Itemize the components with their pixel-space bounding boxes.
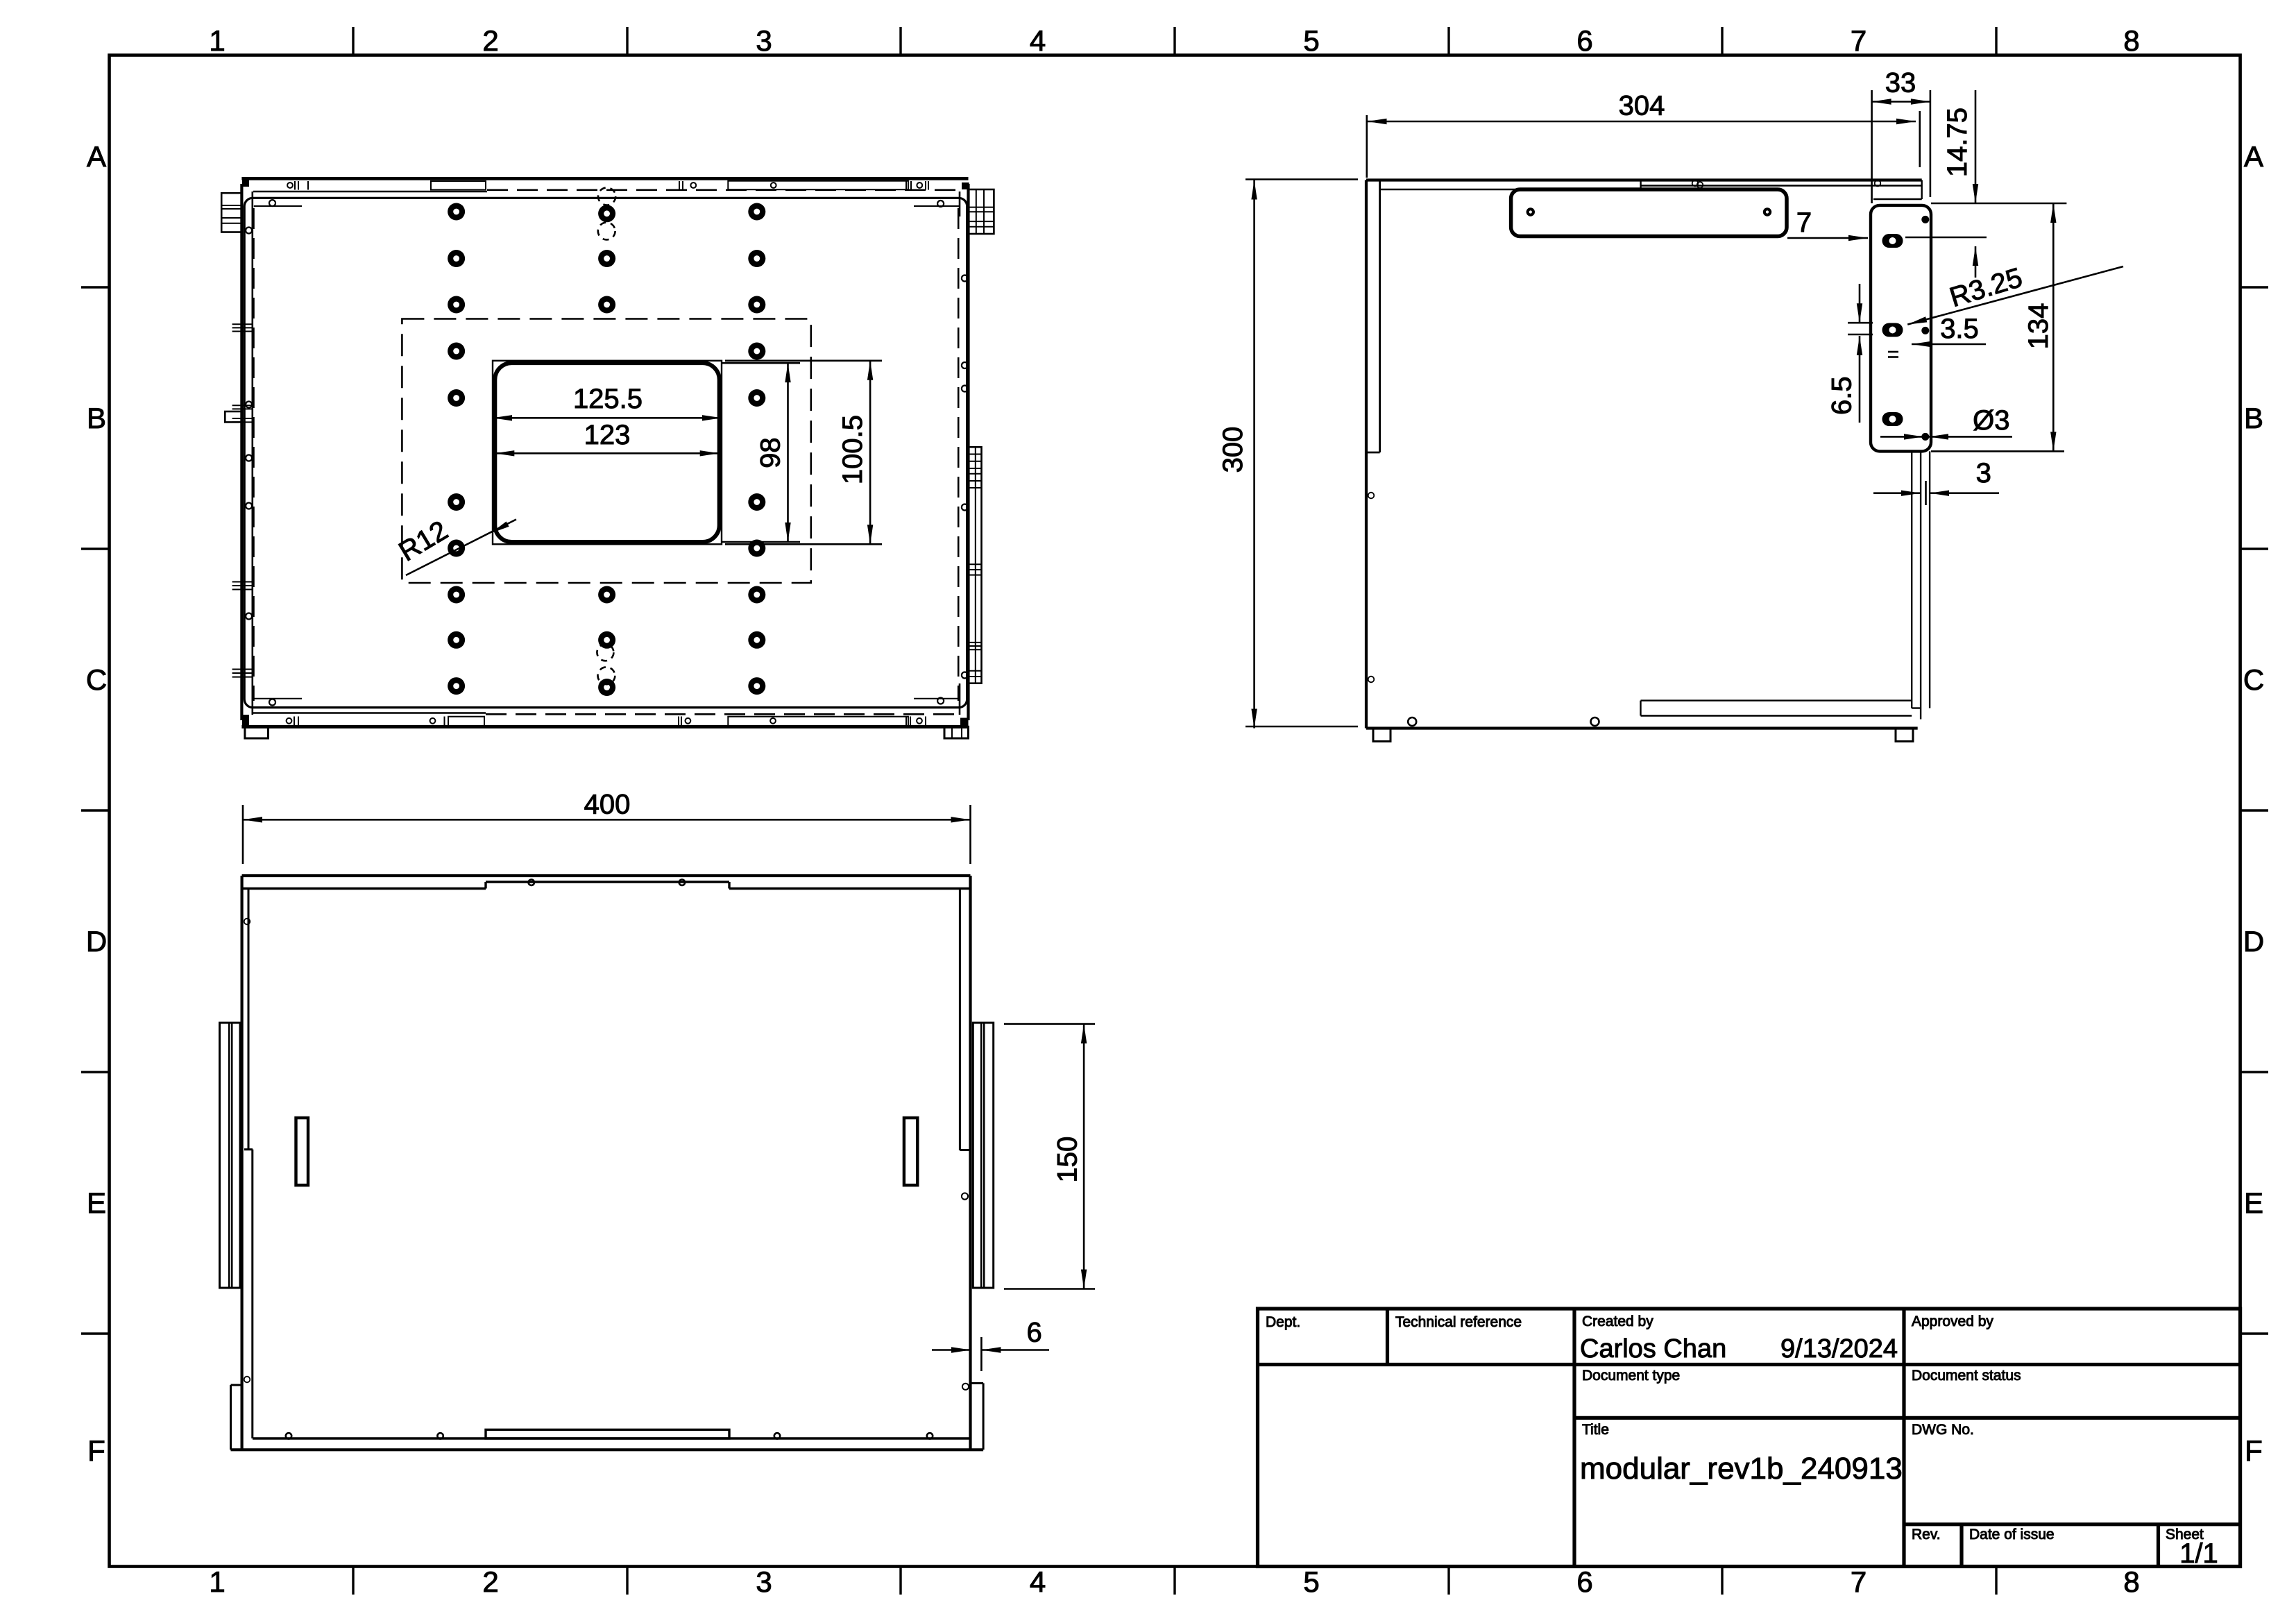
svg-text:Technical reference: Technical reference — [1395, 1314, 1522, 1330]
svg-text:Ø3: Ø3 — [1973, 405, 2009, 436]
svg-text:150: 150 — [1052, 1137, 1082, 1183]
svg-text:F: F — [87, 1434, 105, 1467]
svg-text:6: 6 — [1576, 1565, 1592, 1598]
svg-text:Document type: Document type — [1582, 1368, 1680, 1384]
svg-text:4: 4 — [1030, 24, 1046, 57]
svg-text:B: B — [2244, 402, 2263, 434]
svg-text:Dept.: Dept. — [1266, 1314, 1300, 1330]
svg-text:DWG No.: DWG No. — [1912, 1422, 1974, 1438]
svg-text:D: D — [86, 925, 107, 958]
svg-text:7: 7 — [1796, 207, 1812, 238]
svg-text:123: 123 — [584, 420, 631, 450]
svg-text:Created by: Created by — [1582, 1314, 1653, 1329]
svg-text:7: 7 — [1851, 24, 1866, 57]
svg-text:6: 6 — [1026, 1317, 1041, 1348]
svg-text:134: 134 — [2023, 303, 2054, 350]
svg-text:2: 2 — [482, 1565, 498, 1598]
svg-text:100.5: 100.5 — [837, 415, 868, 484]
svg-text:8: 8 — [2123, 24, 2139, 57]
svg-text:98: 98 — [755, 437, 785, 468]
svg-text:Title: Title — [1582, 1422, 1609, 1438]
svg-text:3.5: 3.5 — [1940, 314, 1979, 344]
svg-text:6: 6 — [1576, 24, 1592, 57]
svg-text:1: 1 — [209, 24, 225, 57]
svg-text:Carlos Chan: Carlos Chan — [1580, 1334, 1726, 1363]
svg-text:C: C — [2243, 663, 2264, 696]
svg-text:7: 7 — [1851, 1565, 1866, 1598]
svg-text:3: 3 — [756, 1565, 772, 1598]
svg-text:14.75: 14.75 — [1942, 108, 1973, 177]
svg-text:33: 33 — [1885, 67, 1916, 98]
svg-text:5: 5 — [1303, 1565, 1319, 1598]
svg-text:400: 400 — [584, 790, 631, 820]
svg-text:300: 300 — [1218, 427, 1248, 473]
svg-text:2: 2 — [482, 24, 498, 57]
svg-text:8: 8 — [2123, 1565, 2139, 1598]
svg-text:6.5: 6.5 — [1827, 376, 1857, 415]
svg-text:5: 5 — [1303, 24, 1319, 57]
svg-text:125.5: 125.5 — [573, 384, 643, 414]
svg-text:1: 1 — [209, 1565, 225, 1598]
svg-text:A: A — [2244, 140, 2263, 173]
svg-text:Date of issue: Date of issue — [1969, 1527, 2055, 1543]
svg-text:Approved by: Approved by — [1912, 1314, 1993, 1329]
svg-text:C: C — [86, 663, 107, 696]
svg-text:3: 3 — [1976, 458, 1991, 488]
svg-text:E: E — [87, 1187, 106, 1219]
svg-text:4: 4 — [1030, 1565, 1046, 1598]
svg-text:9/13/2024: 9/13/2024 — [1780, 1334, 1898, 1363]
svg-text:Rev.: Rev. — [1912, 1527, 1941, 1543]
svg-text:3: 3 — [756, 24, 772, 57]
svg-text:E: E — [2244, 1187, 2263, 1219]
svg-text:1/1: 1/1 — [2179, 1538, 2218, 1569]
svg-text:D: D — [2243, 925, 2264, 958]
svg-text:304: 304 — [1619, 91, 1665, 121]
svg-text:F: F — [2245, 1434, 2263, 1467]
svg-text:B: B — [87, 402, 106, 434]
svg-text:modular_rev1b_240913: modular_rev1b_240913 — [1580, 1452, 1903, 1486]
svg-text:A: A — [87, 140, 106, 173]
svg-text:Document status: Document status — [1912, 1368, 2021, 1384]
